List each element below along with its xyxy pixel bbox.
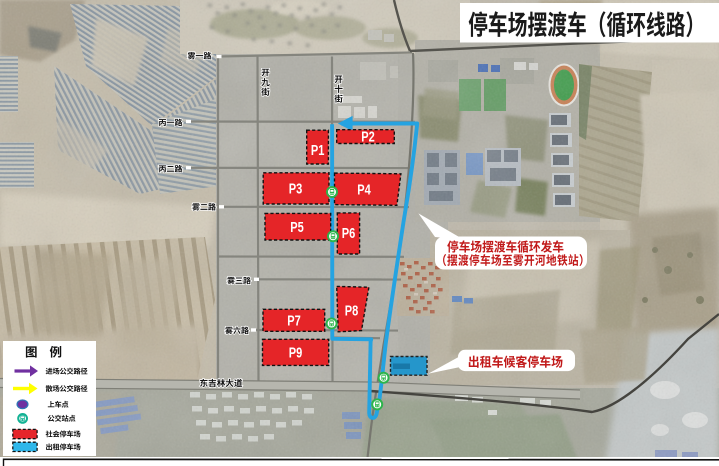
- svg-text:P5: P5: [290, 220, 304, 236]
- svg-text:P3: P3: [289, 182, 303, 198]
- svg-text:P6: P6: [342, 226, 356, 242]
- svg-text:P8: P8: [345, 304, 359, 320]
- svg-text:P2: P2: [361, 130, 375, 146]
- svg-text:P4: P4: [357, 183, 371, 199]
- svg-text:P1: P1: [311, 143, 325, 159]
- svg-text:P9: P9: [289, 346, 303, 362]
- svg-text:P7: P7: [287, 314, 301, 330]
